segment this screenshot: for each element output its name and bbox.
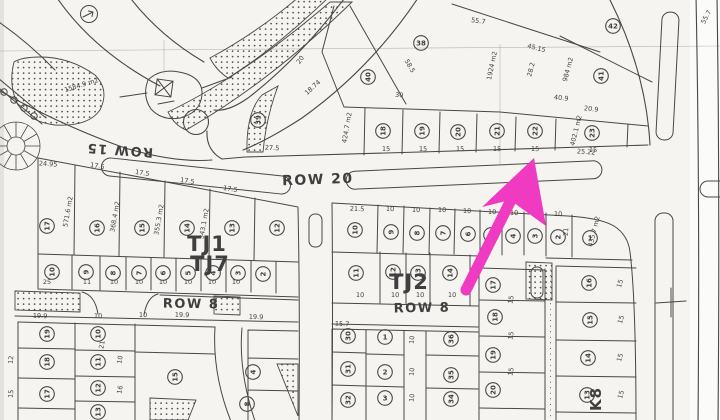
dimension-label: 10 — [232, 278, 240, 286]
svg-text:23: 23 — [589, 128, 597, 138]
svg-text:9: 9 — [83, 269, 91, 274]
svg-text:10: 10 — [95, 329, 103, 339]
svg-text:14: 14 — [585, 353, 593, 363]
scan-edge — [0, 0, 4, 420]
svg-text:18: 18 — [380, 126, 388, 136]
svg-text:10: 10 — [352, 225, 360, 235]
paper-margin — [690, 0, 720, 420]
svg-text:11: 11 — [95, 357, 103, 367]
dimension-label: 21.5 — [350, 205, 365, 214]
svg-text:11: 11 — [353, 268, 361, 278]
svg-text:38: 38 — [416, 40, 426, 48]
svg-text:21: 21 — [494, 126, 502, 136]
dimension-label: 20.9 — [584, 104, 599, 113]
road-label: ROW 8 — [163, 297, 220, 313]
svg-text:40: 40 — [365, 72, 373, 82]
svg-text:13: 13 — [95, 407, 103, 417]
dimension-label: 16 — [115, 385, 124, 395]
svg-text:1: 1 — [588, 235, 593, 243]
dimension-label: 10 — [448, 291, 457, 299]
dimension-label: 10 — [554, 210, 563, 218]
svg-text:19: 19 — [419, 126, 427, 136]
dimension-label: 10 — [408, 335, 417, 344]
dimension-label: 15 — [419, 145, 428, 153]
dimension-label: 10 — [115, 355, 124, 365]
svg-text:8: 8 — [244, 401, 252, 406]
svg-text:6: 6 — [160, 270, 168, 275]
svg-text:41: 41 — [598, 71, 606, 81]
svg-text:32: 32 — [345, 395, 353, 405]
dimension-label: 10 — [412, 206, 421, 214]
plat-map-page: 1584.9 m21924 m2984 m2424.7 m2402.1 m243… — [0, 0, 720, 420]
dimension-label: 10 — [463, 207, 472, 215]
dimension-label: 10 — [94, 312, 103, 320]
svg-text:8: 8 — [110, 270, 118, 275]
road-label: ROW 8 — [394, 301, 451, 317]
svg-text:34: 34 — [448, 394, 456, 404]
svg-text:3: 3 — [532, 233, 540, 238]
dimension-label: 15 — [589, 146, 598, 154]
svg-text:8: 8 — [414, 230, 422, 235]
plat-map: 1584.9 m21924 m2984 m2424.7 m2402.1 m243… — [0, 0, 720, 420]
svg-text:17: 17 — [490, 280, 498, 290]
road-label: ROW 20 — [282, 171, 354, 189]
svg-text:18: 18 — [44, 357, 52, 367]
dimension-label: 10 — [408, 393, 417, 402]
dimension-label: 19.9 — [33, 312, 48, 321]
block-label: TJ2 — [389, 270, 429, 294]
dimension-label: 15 — [382, 145, 391, 153]
svg-text:20: 20 — [455, 127, 463, 137]
dimension-label: 10 — [488, 208, 497, 216]
dimension-label: 15 — [506, 331, 515, 341]
svg-text:22: 22 — [532, 126, 540, 136]
svg-text:2: 2 — [260, 271, 268, 276]
svg-text:3: 3 — [383, 395, 388, 403]
dimension-label: 12 — [7, 355, 16, 364]
block-label: K8 — [587, 387, 605, 411]
svg-text:4: 4 — [250, 369, 258, 374]
svg-text:13: 13 — [229, 223, 237, 233]
dimension-label: 10 — [139, 311, 148, 319]
svg-text:2: 2 — [555, 234, 563, 239]
dimension-label: 30 — [395, 91, 404, 100]
block-label: TJ7 — [190, 252, 230, 276]
svg-text:4: 4 — [510, 233, 518, 238]
svg-text:20: 20 — [490, 385, 498, 395]
dimension-label: 15 — [493, 145, 502, 153]
svg-text:7: 7 — [136, 270, 144, 275]
dimension-label: 10 — [386, 205, 395, 213]
svg-text:30: 30 — [345, 331, 353, 341]
svg-text:1: 1 — [383, 334, 388, 342]
svg-text:6: 6 — [465, 231, 473, 236]
svg-text:19: 19 — [44, 329, 52, 339]
dimension-label: 27.5 — [265, 144, 280, 153]
svg-text:17: 17 — [44, 389, 52, 399]
dimension-label: 15 — [506, 367, 515, 377]
svg-text:36: 36 — [448, 334, 456, 344]
svg-text:42: 42 — [608, 23, 618, 31]
svg-text:19: 19 — [490, 350, 498, 360]
dimension-label: 10 — [408, 367, 417, 376]
dimension-label: 15 — [7, 389, 16, 398]
svg-text:15: 15 — [172, 372, 180, 382]
dimension-label: 10 — [356, 291, 365, 299]
dimension-label: 15.7 — [335, 320, 350, 329]
dimension-label: 19.9 — [249, 313, 264, 322]
svg-text:12: 12 — [274, 223, 282, 233]
dimension-label: 15 — [506, 295, 515, 305]
svg-text:17: 17 — [44, 221, 52, 231]
svg-text:15: 15 — [587, 315, 595, 325]
svg-text:31: 31 — [345, 364, 353, 374]
dimension-label: 15 — [456, 145, 465, 153]
svg-text:12: 12 — [95, 383, 103, 393]
svg-text:15: 15 — [139, 223, 147, 233]
dimension-label: 15 — [531, 145, 540, 153]
dimension-label: 10 — [438, 206, 447, 214]
dimension-label: 19.9 — [175, 311, 190, 320]
dimension-label: 24.95 — [39, 159, 58, 168]
svg-text:18: 18 — [492, 312, 500, 322]
svg-text:35: 35 — [448, 370, 456, 380]
svg-text:2: 2 — [383, 369, 388, 377]
svg-text:14: 14 — [447, 268, 455, 278]
svg-text:10: 10 — [49, 267, 57, 277]
dimension-label: 40.9 — [554, 93, 569, 102]
svg-text:16: 16 — [94, 223, 102, 233]
svg-text:7: 7 — [440, 230, 448, 235]
svg-text:39: 39 — [255, 115, 263, 125]
svg-text:3: 3 — [235, 270, 243, 275]
svg-text:9: 9 — [388, 229, 396, 234]
svg-text:16: 16 — [586, 278, 594, 288]
